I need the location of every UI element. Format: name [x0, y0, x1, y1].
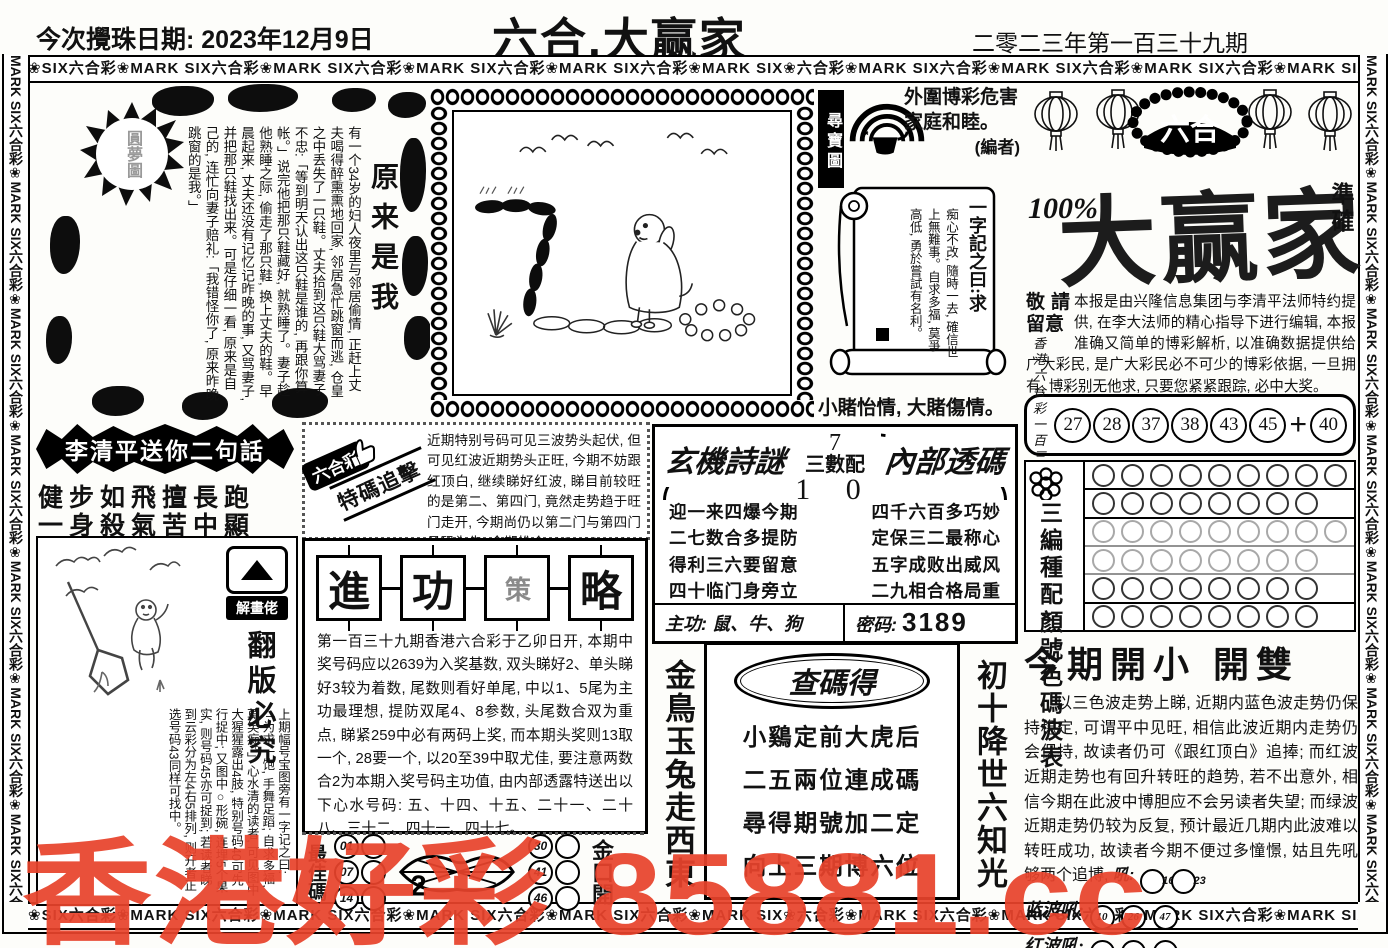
- seal-connector: [550, 587, 568, 590]
- poem-left: 迎一来四爆今期 二七数合多提防 得利三六要留意 四十临门身旁立: [669, 499, 799, 604]
- seal-char-ornate: 策: [484, 555, 550, 621]
- seal-char: 略: [568, 555, 634, 621]
- ink-blob: [228, 84, 298, 112]
- couplet-banner: 李清平送你二句話: [36, 424, 294, 474]
- blue-number: 47: [1153, 905, 1178, 930]
- notice-title: 敬請留意: [1026, 292, 1070, 336]
- combo-digit-top: 7: [795, 431, 875, 455]
- top-border-strip: ❀SIX六合彩❀MARK SIX六合彩❀MARK SIX六合彩❀MARK SIX…: [28, 55, 1358, 83]
- poem-header-left: 玄機詩謎: [660, 431, 790, 487]
- draw-date: 今次攪珠日期: 2023年12月9日: [36, 20, 374, 56]
- wave-row: [1085, 490, 1354, 518]
- liuhe-logo: 六合: [1124, 84, 1256, 168]
- accuracy-label: 準確: [1324, 182, 1358, 236]
- flower-icon: [1026, 464, 1066, 500]
- number-ball: 27: [1054, 408, 1091, 443]
- special-text: 近期特别号码可见三波势头起伏, 但可见红波近期势头正旺, 今期不妨跟红顶白, 继…: [427, 431, 641, 533]
- zodiac-hint: 主功: 鼠、牛、狗: [655, 605, 843, 641]
- three-digit-combo: 7 三數配 1 0: [789, 431, 881, 505]
- previous-results-box: 香港六合彩 一百三十七期 27 28 37 38 43 45 + 40: [1024, 394, 1356, 456]
- wave-table-label: 三編 種配 顏號 色碼 波表: [1026, 462, 1085, 630]
- special-number-ball: 40: [1310, 408, 1347, 443]
- plus-sign: +: [1289, 408, 1307, 442]
- newspaper-page: 今次攪珠日期: 2023年12月9日 六合.大赢家 二零二三年第一百三十九期 ❀…: [0, 0, 1388, 948]
- mystic-poem-box: 玄機詩謎 7 三數配 1 0 內部透碼 迎一来四爆今期 二七数合多提防 得利三六…: [652, 424, 1018, 644]
- ink-blob: [332, 88, 376, 112]
- gambling-motto: 小賭怡情, 大賭傷情。: [818, 391, 1018, 420]
- hou-number: 23: [1171, 869, 1196, 894]
- wave-row: [1085, 575, 1354, 603]
- anti-gambling-notice: 外圍博彩危害家庭和睦。(編者): [904, 86, 1020, 159]
- password-hint: 密码: 3189: [843, 605, 1015, 641]
- ring-chain-left: [430, 106, 448, 400]
- editor-notice: 敬請留意本报是由兴隆信息集团与李清平法师特约提供, 在李大法师的精心指导下进行编…: [1026, 292, 1356, 398]
- verse-line: 小鷄定前大虎后: [711, 718, 953, 752]
- special-tag: 六合彩 特碼追擊: [300, 418, 436, 529]
- verse-line: 二五兩位連成碼: [711, 761, 953, 795]
- mountain-icon: [226, 546, 288, 594]
- number-ball: 38: [1171, 408, 1208, 443]
- story-title: 原来是我: [362, 162, 402, 322]
- editor-note: (編者): [904, 137, 1020, 159]
- treasure-picture: [430, 88, 814, 418]
- lantern-icon: [1035, 92, 1077, 151]
- red-watermark: 香港好彩 85881.cc: [22, 800, 1149, 948]
- riddle-sketch: [42, 544, 198, 704]
- seal-char: 功: [400, 555, 466, 621]
- combo-label: 三數配: [795, 455, 875, 475]
- notice-body: 本报是由兴隆信息集团与李清平法师特约提供, 在李大法师的精心指导下进行编辑, 本…: [1026, 294, 1356, 395]
- winning-numbers: 27 28 37 38 43 45 + 40: [1054, 408, 1347, 443]
- poem-right: 四千六百多巧妙 定保三二最称心 五字成败出威风 二九相合格局重: [872, 499, 1002, 604]
- treasure-drawing: [452, 110, 792, 396]
- number-ball: 37: [1132, 408, 1169, 443]
- treasure-hunt-badge: 尋寶圖: [818, 90, 844, 188]
- wave-row: [1085, 462, 1354, 490]
- seal-connector: [466, 587, 484, 590]
- wave-row: [1085, 519, 1354, 547]
- seal-connector: [382, 587, 400, 590]
- dog-picture: [454, 112, 789, 393]
- wave-table-grid: [1085, 462, 1354, 630]
- story-text: 有一个34岁的妇人夜里与邻居偷情, 正赶上丈夫喝得醉熏熏地回家, 邻居急忙跳窗而…: [66, 126, 362, 402]
- forecast-headline: 今期開小 開雙: [1024, 636, 1358, 688]
- scroll-drawing: 一字記之曰:求 痴心不改, 隨時一去, 確信世上無難事。自求多福, 莫爭高低, …: [818, 180, 1018, 386]
- issue-number: 二零二三年第一百三十九期: [972, 24, 1248, 58]
- number-ball: 28: [1093, 408, 1130, 443]
- number-ball: 45: [1249, 408, 1286, 443]
- ring-chain-bottom: [430, 400, 814, 418]
- ink-blob: [404, 316, 432, 360]
- poem-footer: 主功: 鼠、牛、狗 密码: 3189: [655, 603, 1015, 641]
- number-ball: 43: [1210, 408, 1247, 443]
- verse-oval-title: 查碼得: [734, 653, 930, 709]
- ape-net-drawing: [42, 544, 198, 704]
- left-border-strip: MARK SIX六合彩❀MARK SIX六合彩❀MARK SIX六合彩❀MARK…: [4, 55, 30, 902]
- ink-blob: [400, 138, 426, 212]
- combo-digits-bottom: 1 0: [795, 475, 875, 505]
- poem-box-header: 玄機詩謎 7 三數配 1 0 內部透碼: [655, 427, 1015, 497]
- wave-row: [1085, 604, 1354, 630]
- decode-badge: 解畫佬: [226, 546, 288, 620]
- ring-chain-top: [430, 88, 814, 106]
- color-wave-table: 三編 種配 顏號 色碼 波表: [1024, 460, 1356, 632]
- brand-calligraphy: 大赢家: [1056, 155, 1367, 308]
- special-number-box: 六合彩 特碼追擊 近期特别号码可见三波势头起伏, 但可见红波近期势头正旺, 今期…: [302, 422, 650, 540]
- decode-badge-label: 解畫佬: [226, 596, 288, 620]
- strategy-title-seals: 進 功 策 略: [305, 555, 645, 621]
- ring-chain-right: [796, 106, 814, 400]
- draw-date-value: 2023年12月9日: [201, 26, 373, 54]
- ink-blob: [402, 236, 428, 296]
- scroll-section: 尋寶圖 外圍博彩危害家庭和睦。(編者) 一: [818, 86, 1018, 422]
- story-section: 圓夢圖 原来是我 有一个34岁的妇人夜里与邻居偷情, 正赶上丈夫喝得醉熏熏地回家…: [32, 86, 428, 424]
- ink-blob: [388, 92, 426, 118]
- draw-date-label: 今次攪珠日期:: [36, 26, 194, 54]
- poem-columns: 迎一来四爆今期 二七数合多提防 得利三六要留意 四十临门身旁立 四千六百多巧妙 …: [655, 497, 1015, 604]
- scroll-verse: 痴心不改, 隨時一去, 確信世上無難事。自求多福, 莫爭高低, 勇於嘗試有名利。: [864, 208, 960, 358]
- wave-row: [1085, 547, 1354, 575]
- seal-char: 進: [316, 555, 382, 621]
- scroll-headline: 一字記之曰:求: [964, 198, 990, 368]
- red-number: 24: [1153, 940, 1178, 948]
- poem-header-right: 內部透碼: [880, 431, 1010, 487]
- lantern-icon: [1309, 92, 1351, 151]
- strategy-section: 進 功 策 略 第一百三十九期香港六合彩于乙卯日开, 本期中奖号码应以2639为…: [302, 538, 648, 834]
- svg-text:六合: 六合: [1160, 113, 1220, 147]
